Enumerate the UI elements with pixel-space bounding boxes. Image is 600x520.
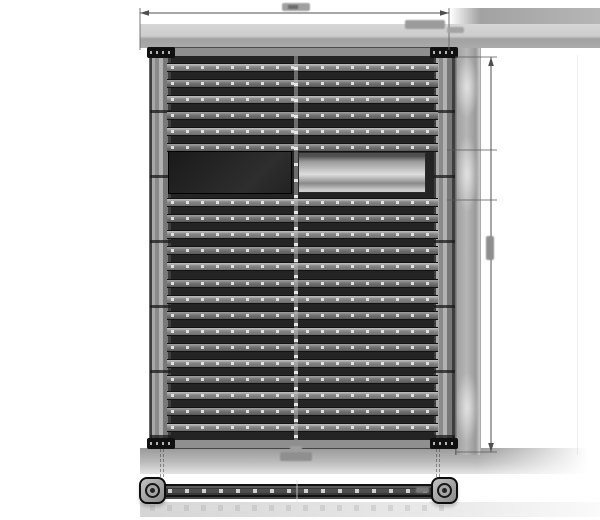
bracket-specks: [150, 51, 172, 54]
detached-bar-led-dashes: [168, 489, 429, 493]
shading-band-bottom-fade: [478, 448, 600, 474]
led-bar: [167, 295, 438, 304]
led-bar: [167, 127, 438, 136]
led-bar: [167, 95, 438, 104]
led-bar: [167, 246, 438, 255]
corner-bracket-top-left: [147, 47, 175, 58]
detached-bar-body: [162, 484, 435, 499]
led-dots: [171, 298, 434, 301]
bracket-specks: [150, 442, 172, 445]
led-bar: [167, 230, 438, 239]
led-dots: [171, 314, 434, 317]
led-bar: [167, 279, 438, 288]
led-dots: [171, 346, 434, 349]
led-dots: [171, 378, 434, 381]
led-bar: [167, 407, 438, 416]
top-dimension-label-smudge: [282, 3, 310, 11]
led-bar: [167, 311, 438, 320]
bar-end-cap-left: [139, 477, 166, 504]
led-bar: [167, 423, 438, 432]
end-cap-ring: [437, 483, 452, 498]
driver-box-metal: [298, 152, 426, 193]
led-bar: [167, 111, 438, 120]
bracket-specks: [433, 442, 455, 445]
end-cap-screw: [442, 488, 447, 493]
led-dots: [171, 82, 434, 85]
profile-detail-top: [456, 56, 478, 118]
led-dots: [171, 249, 434, 252]
end-cap-ring: [145, 483, 160, 498]
led-dots: [171, 282, 434, 285]
led-bar: [167, 262, 438, 271]
led-dots: [171, 233, 434, 236]
led-dots: [171, 265, 434, 268]
driver-box-dark: [168, 151, 292, 194]
led-dots: [171, 66, 434, 69]
led-dots: [171, 426, 434, 429]
center-spine: [294, 56, 298, 440]
faint-edge-line: [577, 55, 578, 455]
bracket-specks: [433, 51, 455, 54]
shading-band-top: [140, 24, 600, 48]
technical-drawing-canvas: [0, 0, 600, 520]
led-bar: [167, 343, 438, 352]
led-dots: [171, 98, 434, 101]
corner-bracket-bottom-right: [430, 438, 458, 449]
bar-end-cap-right: [431, 477, 458, 504]
top-dimension-label-smudge-dark: [288, 5, 298, 9]
led-bar: [167, 79, 438, 88]
led-dots: [171, 130, 434, 133]
dim-arrow-top: [488, 57, 494, 66]
right-dimension-label-smudge: [486, 236, 494, 260]
fixture-top-view: [150, 48, 455, 448]
led-dots: [171, 217, 434, 220]
profile-detail-mid: [456, 136, 478, 212]
led-dots: [171, 362, 434, 365]
led-bar: [167, 63, 438, 72]
led-dots: [171, 410, 434, 413]
led-dots: [171, 330, 434, 333]
reflection-dashes: [150, 505, 450, 511]
end-cap-screw: [150, 488, 155, 493]
led-bar: [167, 375, 438, 384]
led-bar: [167, 359, 438, 368]
led-bar: [167, 214, 438, 223]
dim-arrow-left: [140, 10, 149, 16]
led-dots: [171, 114, 434, 117]
profile-detail-bottom: [456, 372, 478, 442]
led-dots: [171, 394, 434, 397]
led-bar: [167, 198, 438, 207]
led-dots: [171, 146, 434, 149]
shading-band-top-right: [450, 8, 600, 25]
led-bar: [167, 391, 438, 400]
corner-bracket-bottom-left: [147, 438, 175, 449]
dim-arrow-right: [440, 10, 449, 16]
led-bar: [167, 327, 438, 336]
corner-bracket-top-right: [430, 47, 458, 58]
led-dots: [171, 201, 434, 204]
